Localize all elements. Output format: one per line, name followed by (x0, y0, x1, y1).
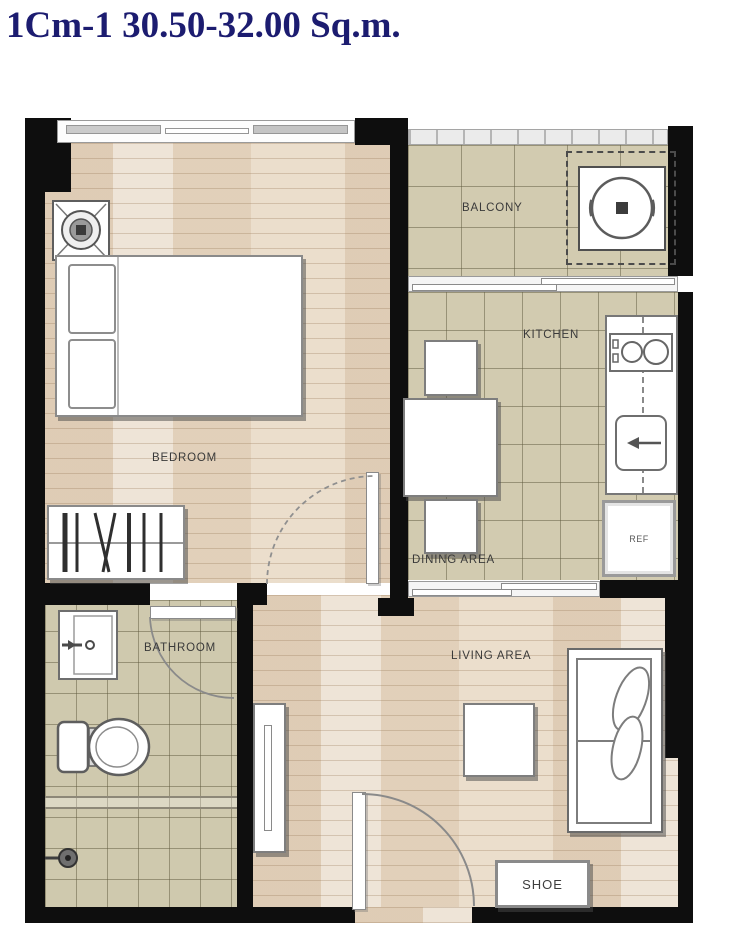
washing-machine (578, 166, 666, 251)
balcony-label: BALCONY (462, 202, 523, 215)
shoe-cabinet-label: SHOE (522, 877, 563, 892)
bed-pillow (68, 339, 116, 409)
living-area-label: LIVING AREA (451, 650, 531, 663)
coffee-table (463, 703, 535, 777)
refrigerator-label: REF (629, 534, 649, 544)
bed (55, 255, 303, 417)
wall-left (25, 118, 45, 923)
bed-headboard-line (117, 257, 119, 415)
entry-threshold (355, 907, 472, 923)
floor-plan-page: 1Cm-1 30.50-32.00 Sq.m. (0, 0, 741, 950)
bedroom-label: BEDROOM (152, 452, 217, 465)
stove-burners-icon (611, 335, 671, 370)
air-conditioner-fan-icon (54, 202, 108, 259)
window-pane (165, 128, 249, 134)
kitchen-label: KITCHEN (523, 329, 579, 342)
kitchen-sink (615, 415, 667, 471)
wall-bottom-right (472, 907, 693, 923)
bathroom-door-leaf (150, 606, 236, 619)
bathroom-label: BATHROOM (144, 642, 216, 655)
bedroom-window (57, 120, 355, 143)
sofa (567, 648, 663, 833)
wall-right-kitchen (678, 292, 693, 598)
wall-kitchen-living (600, 580, 693, 598)
balcony-sliding-door (408, 276, 678, 292)
dining-area-label: DINING AREA (412, 554, 495, 567)
sliding-door-panel (412, 589, 512, 596)
shower-head (45, 843, 85, 873)
washing-machine-drum-icon (580, 168, 664, 249)
shower-divider (45, 796, 237, 809)
tv-icon (264, 725, 272, 831)
wall-bathroom-top-left (25, 583, 150, 605)
balcony-railing (408, 129, 668, 145)
kitchen-sliding-door (408, 581, 600, 597)
sofa-cushions-icon (569, 650, 661, 831)
wall-bathroom-right (237, 583, 253, 923)
dining-chair-bottom (424, 499, 478, 554)
wall-right-living-lower (678, 758, 693, 923)
sliding-door-panel (501, 583, 597, 590)
wall-bedroom-kitchen (390, 128, 408, 600)
wardrobe-hanging-clothes-icon (49, 507, 183, 578)
bathroom-faucet-icon (60, 612, 116, 678)
air-conditioner-unit (52, 200, 110, 261)
stove (609, 333, 673, 372)
floor-plan: REF (0, 0, 741, 950)
bedroom-door-leaf (366, 472, 379, 584)
window-pane (253, 125, 348, 134)
wardrobe (47, 505, 185, 580)
window-pane (66, 125, 161, 134)
dining-chair-top (424, 340, 478, 396)
tv-cabinet (253, 703, 286, 853)
bed-pillow (68, 264, 116, 334)
toilet (55, 715, 153, 779)
wall-right-living-upper (665, 598, 693, 758)
refrigerator: REF (602, 500, 676, 577)
wall-bottom-left (25, 907, 355, 923)
entry-door-leaf (352, 792, 366, 910)
bathroom-sink (58, 610, 118, 680)
sliding-door-panel (412, 284, 557, 291)
shoe-cabinet: SHOE (495, 860, 590, 908)
faucet-icon (617, 417, 665, 469)
dining-table (403, 398, 498, 497)
sliding-door-panel (541, 278, 675, 285)
wall-bedroom-door-stub (378, 598, 414, 616)
